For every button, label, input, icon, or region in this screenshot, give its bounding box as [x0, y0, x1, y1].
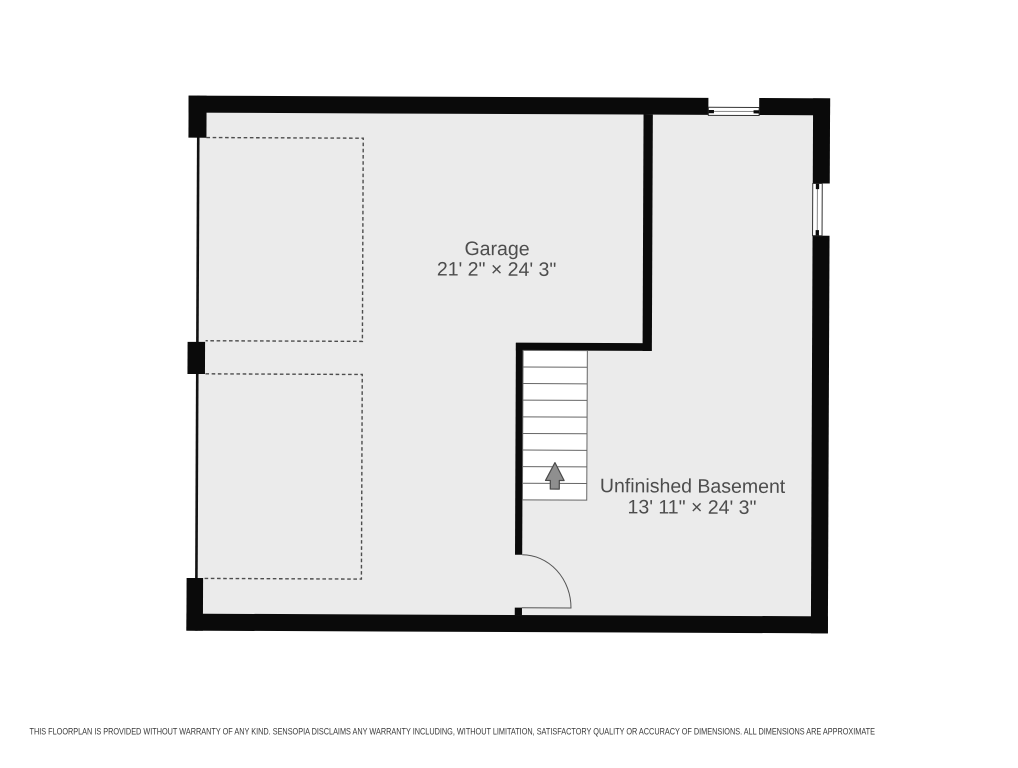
- svg-text:Unfinished Basement: Unfinished Basement: [600, 475, 786, 498]
- svg-text:Garage: Garage: [465, 238, 530, 260]
- svg-text:THIS FLOORPLAN IS PROVIDED WIT: THIS FLOORPLAN IS PROVIDED WITHOUT WARRA…: [30, 725, 876, 736]
- svg-text:21' 2" × 24' 3": 21' 2" × 24' 3": [437, 258, 557, 281]
- svg-text:13' 11" × 24' 3": 13' 11" × 24' 3": [628, 496, 757, 519]
